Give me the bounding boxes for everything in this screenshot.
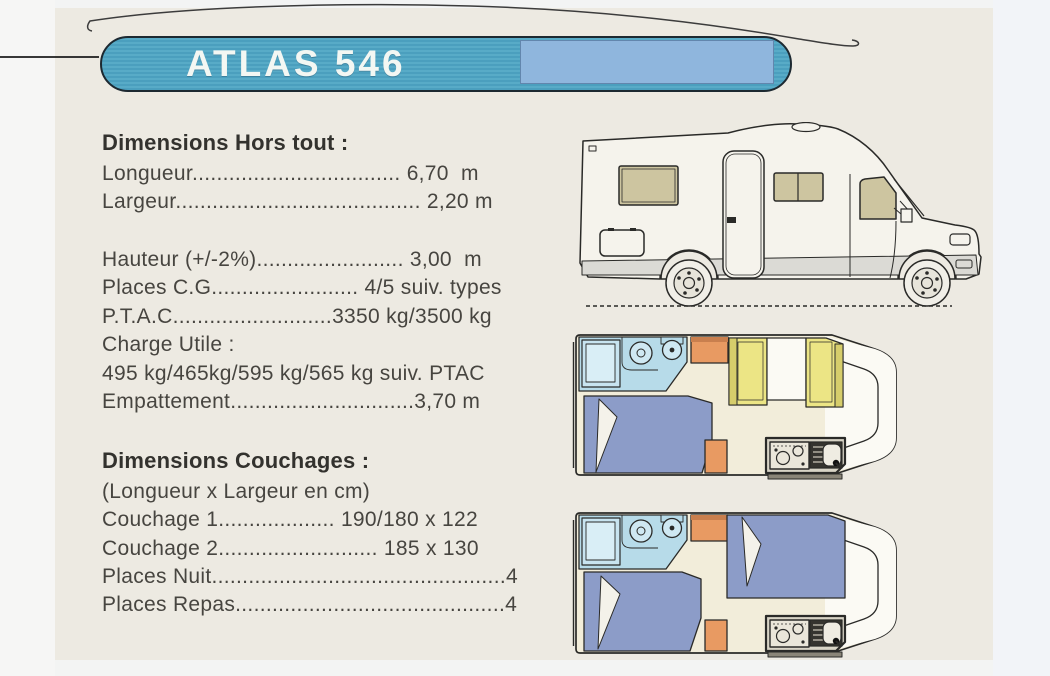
wardrobe-cabinet-bottom xyxy=(705,620,727,651)
dinette-bed xyxy=(727,515,845,598)
headlight xyxy=(950,234,970,245)
roof-vent xyxy=(792,123,820,132)
entry-step xyxy=(768,474,842,479)
spec-line-charge-utile: Charge Utile : xyxy=(102,331,562,359)
kitchen-block xyxy=(766,616,845,651)
door-handle xyxy=(727,217,736,223)
motorhome-side-view-figure xyxy=(558,122,1050,322)
section-heading-dimensions-couchages: Dimensions Couchages : xyxy=(102,448,562,474)
spacer xyxy=(102,217,562,246)
specifications-column: Dimensions Hors tout : Longueur.........… xyxy=(102,130,562,620)
bathroom-area xyxy=(579,515,687,569)
bathroom-area xyxy=(579,337,687,391)
spec-line-places-cg: Places C.G........................ 4/5 s… xyxy=(102,274,562,302)
entry-door xyxy=(723,151,764,278)
section-heading-dimensions-hors-tout: Dimensions Hors tout : xyxy=(102,130,562,156)
kitchen-block xyxy=(766,438,845,473)
floorplan-2-figure xyxy=(570,506,905,661)
spacer xyxy=(102,417,562,448)
brochure-page: ATLAS 546 Dimensions Hors tout : Longueu… xyxy=(0,0,1050,676)
rear-wheel xyxy=(666,260,712,306)
washbasin xyxy=(630,342,652,364)
spec-line-empattement: Empattement.............................… xyxy=(102,388,562,416)
floorplan-1-figure xyxy=(570,328,905,483)
spec-line-couchage-2: Couchage 2.......................... 185… xyxy=(102,535,562,563)
entry-step xyxy=(768,652,842,657)
spec-line-couchage-1: Couchage 1................... 190/180 x … xyxy=(102,506,562,534)
spec-line-places-repas: Places Repas............................… xyxy=(102,591,562,619)
spec-line-places-nuit: Places Nuit.............................… xyxy=(102,563,562,591)
spec-line-largeur: Largeur.................................… xyxy=(102,188,562,216)
dinette-table xyxy=(767,338,806,400)
mirror xyxy=(901,209,912,222)
rear-bed xyxy=(584,572,701,651)
spec-line-couchage-note: (Longueur x Largeur en cm) xyxy=(102,478,562,506)
spec-line-longueur: Longueur................................… xyxy=(102,160,562,188)
rear-side-window xyxy=(619,166,678,205)
banner-highlight xyxy=(520,40,774,84)
model-title-banner: ATLAS 546 xyxy=(100,36,792,92)
washbasin xyxy=(630,520,652,542)
front-wheel xyxy=(904,260,950,306)
dinette xyxy=(729,338,843,407)
model-title: ATLAS 546 xyxy=(186,43,406,85)
spec-line-hauteur: Hauteur (+/-2%)........................ … xyxy=(102,246,562,274)
spec-line-ptac: P.T.A.C..........................3350 kg… xyxy=(102,303,562,331)
rear-bed xyxy=(584,396,712,473)
wardrobe-cabinet-bottom xyxy=(705,440,727,473)
spec-line-charge-utile-values: 495 kg/465kg/595 kg/565 kg suiv. PTAC xyxy=(102,360,562,388)
scan-edge-bottom xyxy=(0,660,1050,676)
rear-hatch xyxy=(600,230,644,256)
